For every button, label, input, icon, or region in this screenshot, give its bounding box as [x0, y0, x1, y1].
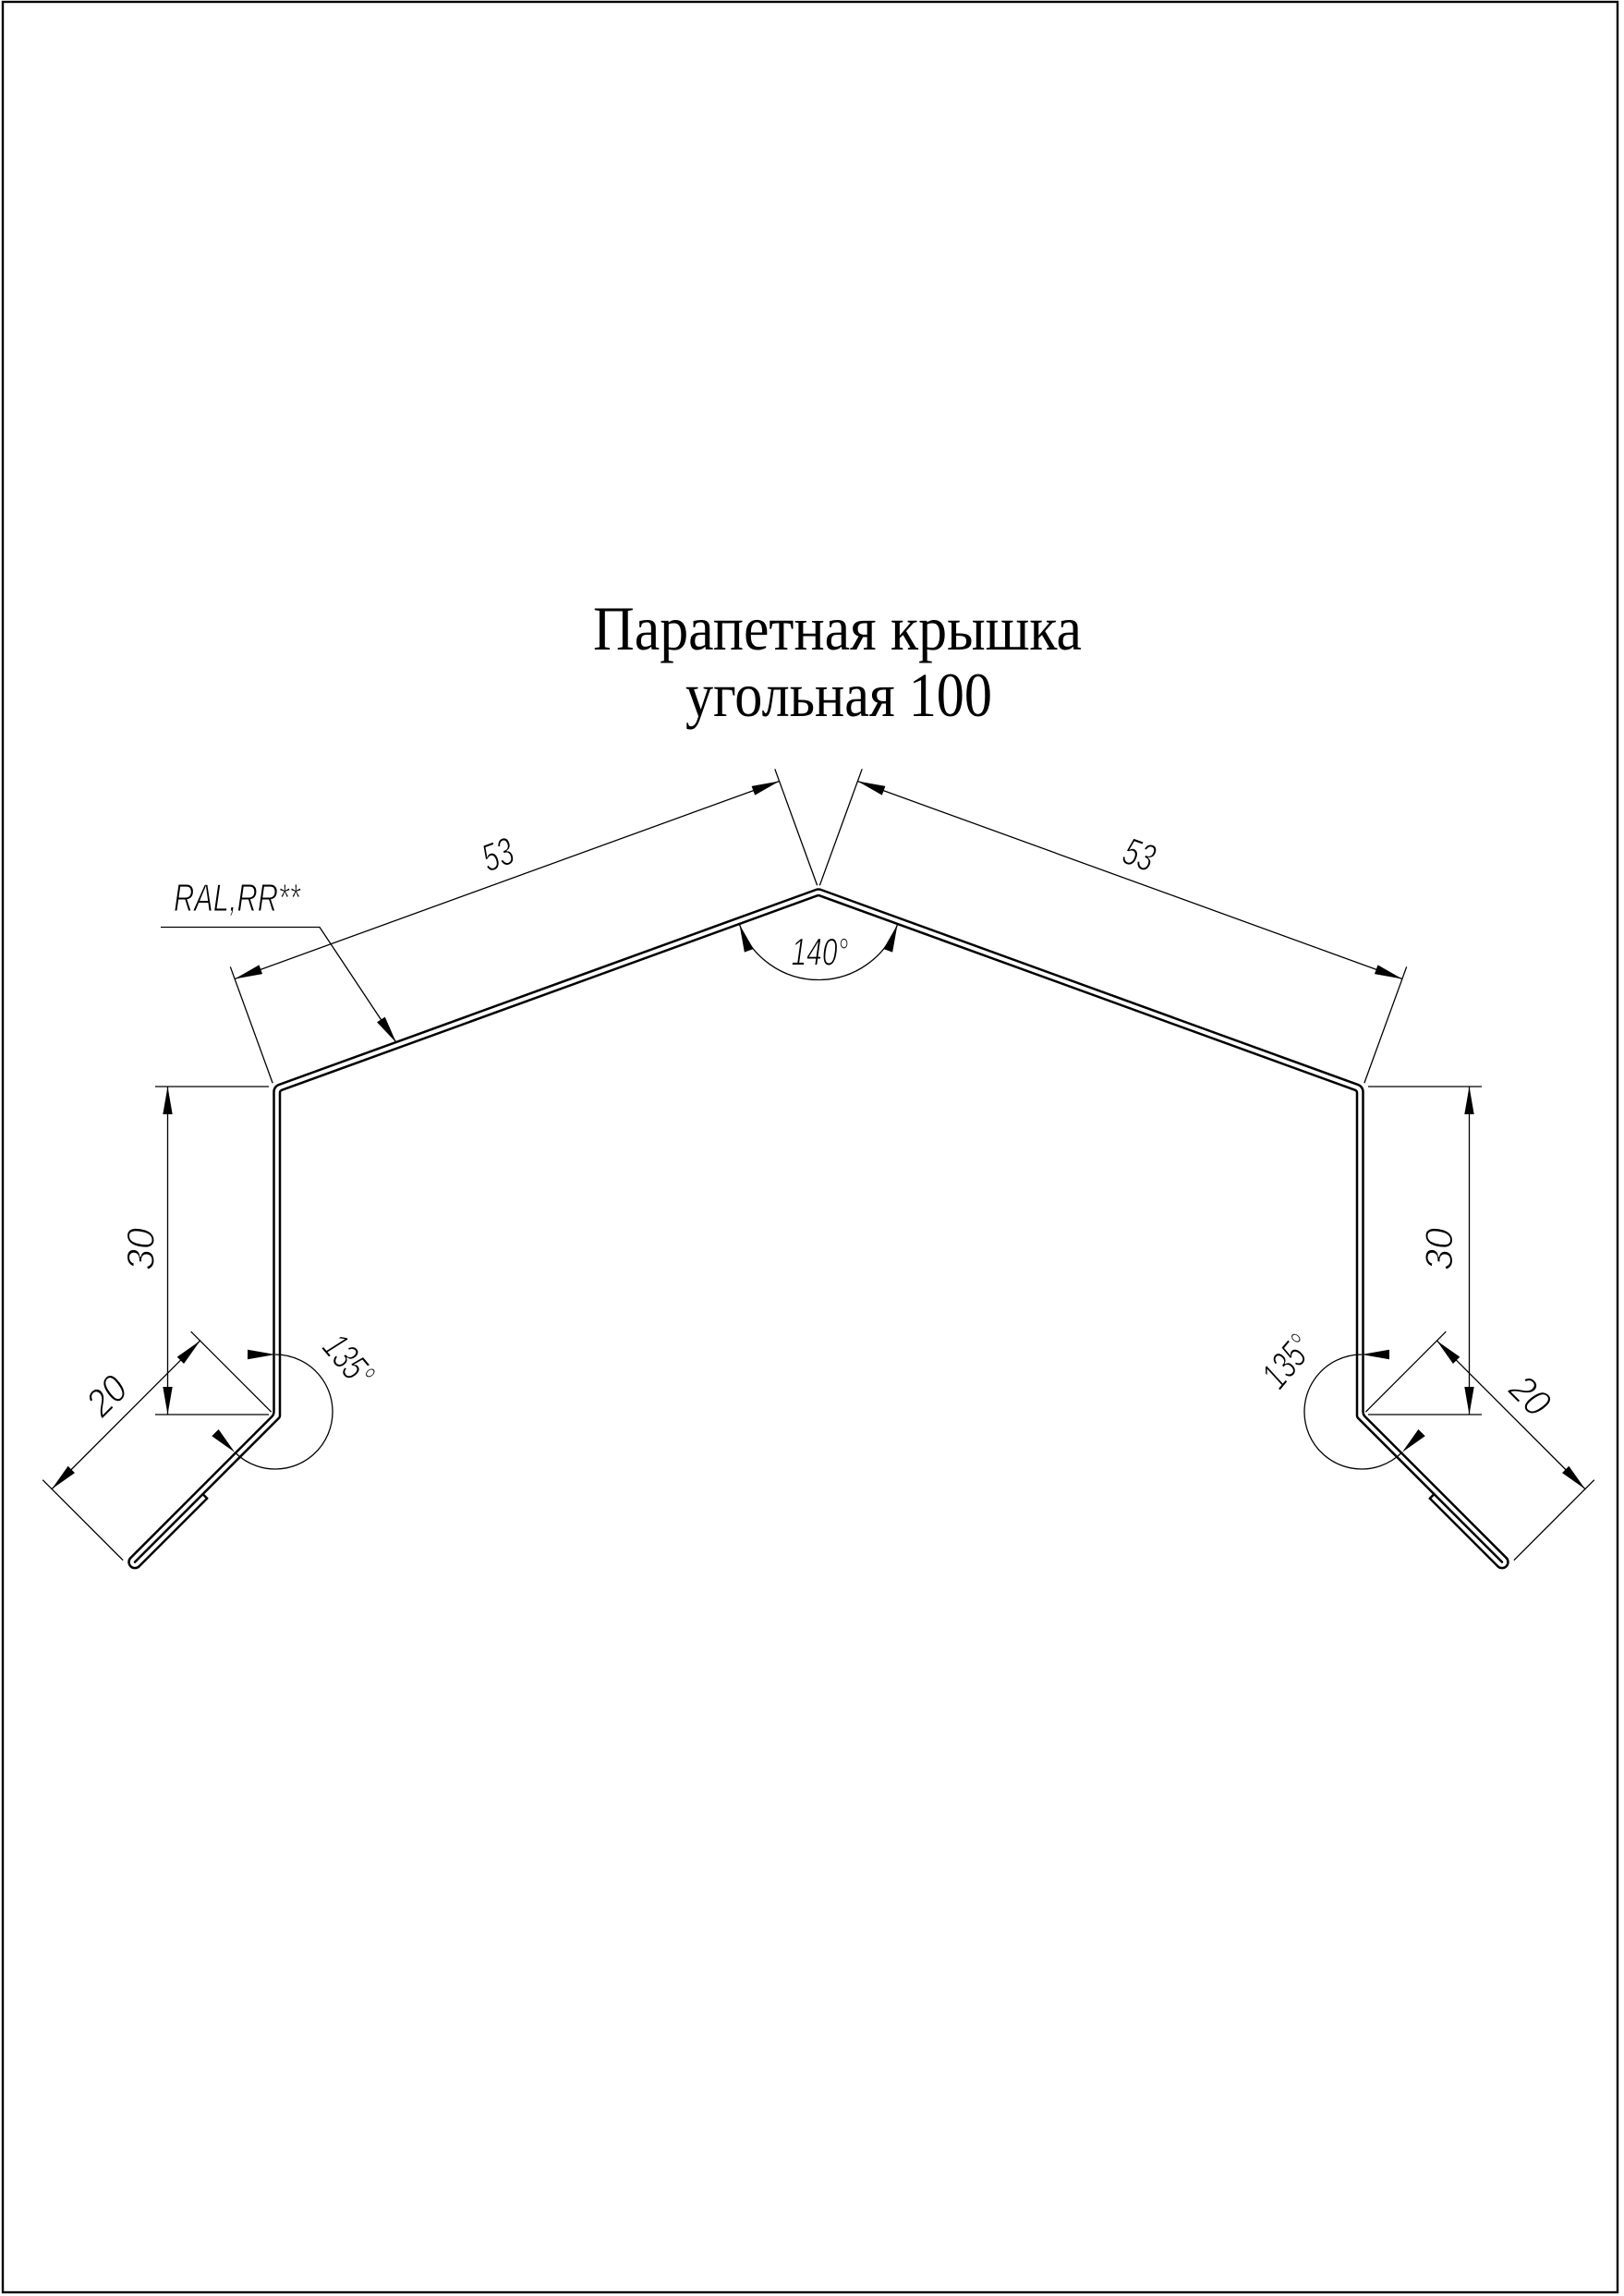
svg-text:угольная 100: угольная 100	[685, 660, 992, 730]
svg-text:53: 53	[1118, 829, 1161, 880]
svg-text:20: 20	[77, 1367, 136, 1426]
svg-text:135°: 135°	[1253, 1326, 1322, 1396]
svg-text:135°: 135°	[314, 1325, 383, 1395]
svg-text:Парапетная крышка: Парапетная крышка	[593, 593, 1082, 663]
svg-text:53: 53	[476, 829, 519, 880]
svg-text:RAL,RR**: RAL,RR**	[174, 876, 301, 919]
svg-text:30: 30	[119, 1227, 163, 1270]
svg-text:20: 20	[1500, 1366, 1559, 1425]
svg-text:140°: 140°	[792, 930, 849, 974]
svg-text:30: 30	[1417, 1227, 1460, 1270]
